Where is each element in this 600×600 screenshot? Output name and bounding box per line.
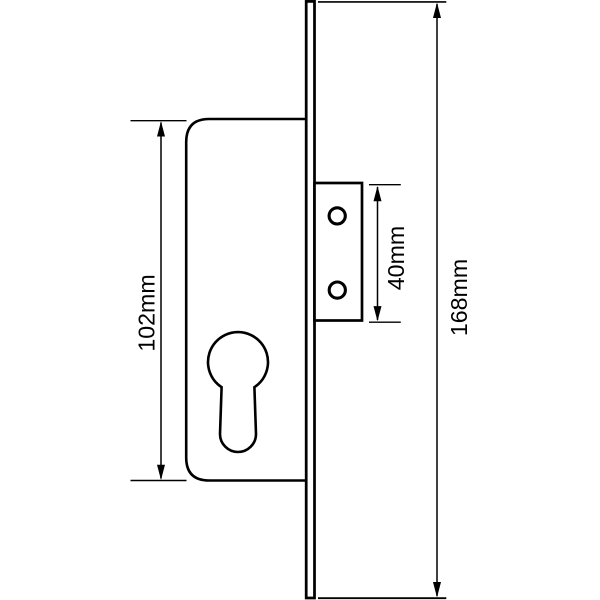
svg-text:168mm: 168mm: [446, 259, 472, 336]
svg-text:102mm: 102mm: [134, 274, 160, 351]
svg-text:40mm: 40mm: [383, 226, 409, 290]
